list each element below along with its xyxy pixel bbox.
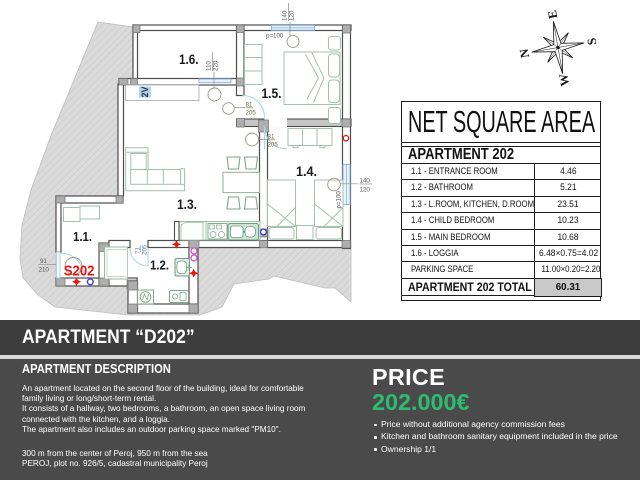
svg-text:E: E — [545, 9, 560, 20]
svg-text:220: 220 — [213, 60, 220, 71]
svg-text:W: W — [556, 72, 572, 87]
svg-text:205: 205 — [142, 244, 149, 255]
svg-text:p=100: p=100 — [336, 191, 343, 209]
svg-text:S: S — [584, 37, 599, 46]
svg-text:140: 140 — [360, 178, 371, 185]
svg-text:1.2.: 1.2. — [150, 258, 169, 273]
svg-text:S202: S202 — [64, 263, 95, 279]
svg-text:1.6.: 1.6. — [179, 51, 199, 67]
svg-text:81: 81 — [246, 102, 253, 109]
svg-text:205: 205 — [268, 142, 279, 149]
svg-text:205: 205 — [246, 110, 257, 117]
svg-text:1.4.: 1.4. — [296, 163, 317, 179]
svg-text:210: 210 — [39, 267, 50, 274]
svg-text:120: 120 — [360, 187, 371, 194]
svg-text:1.1.: 1.1. — [73, 229, 92, 244]
svg-text:N: N — [517, 48, 532, 59]
svg-text:2V: 2V — [140, 86, 150, 97]
svg-text:140: 140 — [282, 10, 289, 21]
svg-text:p=100: p=100 — [266, 33, 284, 40]
svg-text:110: 110 — [206, 61, 213, 71]
svg-text:1.3.: 1.3. — [177, 196, 197, 212]
svg-text:120: 120 — [289, 10, 296, 21]
svg-text:1.5.: 1.5. — [262, 85, 282, 101]
